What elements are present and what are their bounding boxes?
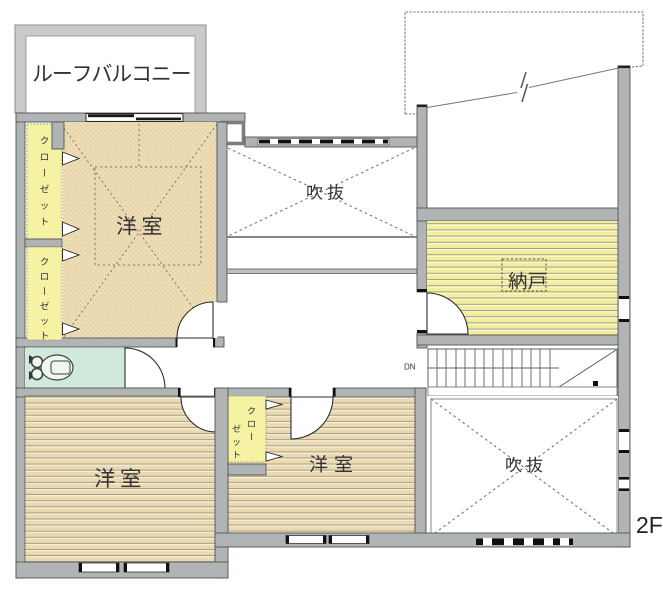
svg-text:DN: DN [404,363,416,372]
svg-text:2F: 2F [636,512,663,538]
